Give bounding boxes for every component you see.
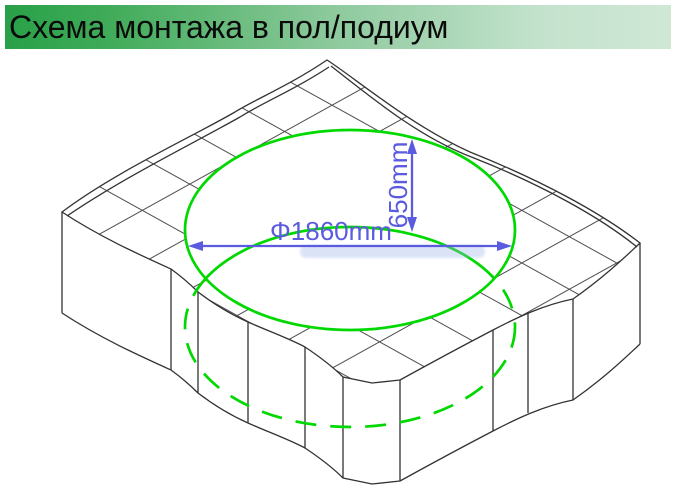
depth-label: 650mm xyxy=(383,142,413,229)
installation-diagram: Φ1860mm 650mm xyxy=(0,0,673,499)
diameter-label: Φ1860mm xyxy=(270,216,392,246)
page: Схема монтажа в пол/подиум xyxy=(0,0,673,499)
